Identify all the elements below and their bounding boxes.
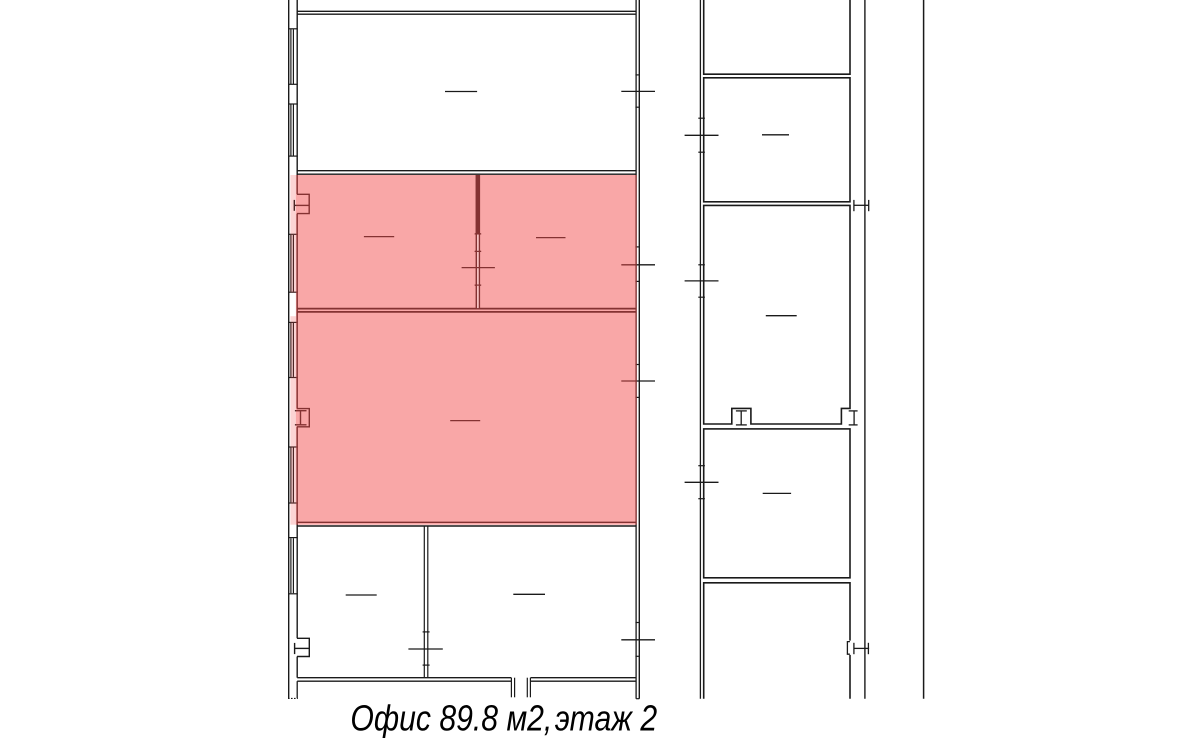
svg-text:Офис 89.8 м2, этаж 2: Офис 89.8 м2, этаж 2: [350, 698, 657, 739]
